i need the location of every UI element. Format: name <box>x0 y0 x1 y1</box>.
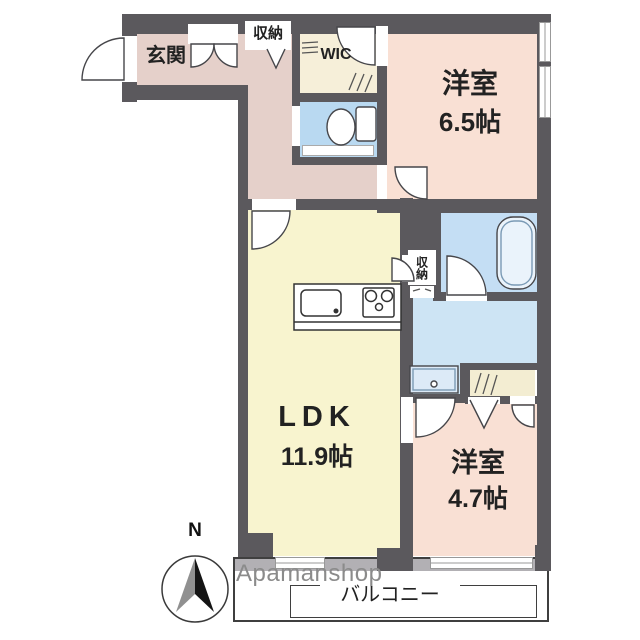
closet-hanger-mark <box>475 373 481 393</box>
entrance-door-arc <box>82 38 124 80</box>
washbasin <box>410 366 458 393</box>
label-wic: WIC <box>310 44 362 66</box>
floorplan: 玄関 収納 WIC 洋室 6.5帖 LDK 11.9帖 収納 洋室 4.7帖 バ… <box>0 0 640 640</box>
open-shelf-mark <box>425 289 431 291</box>
bathroom-door-arc <box>447 256 486 295</box>
watermark: Apamanshop <box>236 560 382 588</box>
compass-north-label: N <box>183 520 207 542</box>
bedroom-2-door-arc <box>416 398 455 437</box>
wic-hanger-mark <box>357 74 364 91</box>
toilet-tank <box>356 107 376 141</box>
stove-burner-2 <box>382 291 393 302</box>
kitchen-faucet <box>334 309 339 314</box>
storage-top-folding-door <box>267 49 285 68</box>
toilet-bowl <box>327 109 355 145</box>
open-shelf-mark <box>413 289 420 291</box>
shoe-cabinet-door-left-arc <box>191 44 214 67</box>
wic-shelf-mark <box>302 42 318 43</box>
label-bedroom-1: 洋室 <box>418 65 522 99</box>
bedroom-1-door-arc <box>395 167 427 199</box>
washbasin-drain <box>431 381 437 387</box>
label-ldk: LDK <box>260 399 374 435</box>
closet-hanger-mark <box>491 375 497 395</box>
fixtures-layer <box>0 0 640 640</box>
label-entrance: 玄関 <box>139 41 193 66</box>
label-storage-mid: 収納 <box>411 252 433 284</box>
stove-burner-1 <box>366 291 377 302</box>
closet-folding-door <box>470 400 498 428</box>
label-ldk-size: 11.9帖 <box>260 440 374 470</box>
closet-hanger-mark <box>483 374 489 394</box>
bedroom-2-door2-arc <box>512 405 534 427</box>
label-bedroom-2-size: 4.7帖 <box>424 482 532 512</box>
compass <box>162 556 228 622</box>
shoe-cabinet-door-right-arc <box>214 44 237 67</box>
label-bedroom-1-size: 6.5帖 <box>418 104 522 136</box>
wic-hanger-mark <box>349 73 356 90</box>
ldk-door-arc <box>252 211 290 249</box>
label-storage-top: 収納 <box>245 22 291 42</box>
wic-hanger-mark <box>365 75 372 92</box>
label-bedroom-2: 洋室 <box>424 444 532 476</box>
stove-burner-3 <box>376 304 383 311</box>
